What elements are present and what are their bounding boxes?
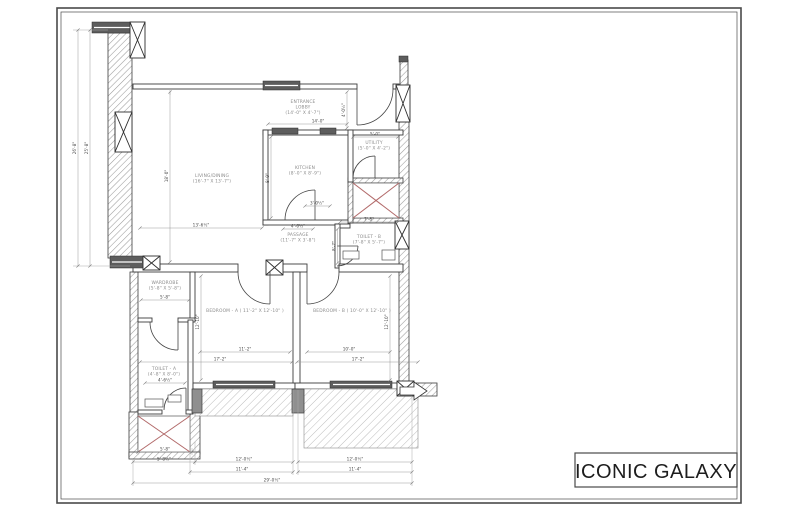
svg-text:8'-9": 8'-9" [265, 173, 270, 183]
svg-text:18'-0": 18'-0" [164, 170, 169, 183]
dimension: 12'-0½" [296, 457, 413, 464]
dimension: 3'-0½" [303, 201, 331, 208]
svg-text:3'-0½": 3'-0½" [310, 201, 324, 206]
svg-text:17'-2": 17'-2" [352, 357, 365, 362]
drawing-sheet: 26'-8"25'-8"18'-0"13'-6½"14'-0"4'-0½"8'-… [0, 0, 796, 512]
svg-text:11'-2": 11'-2" [239, 347, 252, 352]
svg-text:5'-8": 5'-8" [160, 447, 170, 452]
room-label-utility: UTILITY(5'-0" X 4'-2") [358, 140, 390, 152]
dimension: 17'-2" [138, 357, 293, 364]
dimension: 29'-0½" [131, 478, 413, 485]
room-label-bedroom-a: BEDROOM - A ( 11'-2" X 12'-10" ) [206, 308, 284, 314]
svg-text:10'-0": 10'-0" [343, 347, 356, 352]
svg-text:12'-0½": 12'-0½" [236, 457, 253, 462]
bedroom-a-door [238, 272, 270, 304]
dimension: 12'-10" [195, 274, 203, 381]
svg-text:12'-0½": 12'-0½" [347, 457, 364, 462]
svg-text:4'-6½": 4'-6½" [158, 378, 172, 383]
room-label-toilet-b: TOILET - B(7'-8" X 5'-7") [353, 234, 385, 246]
dimension: 18'-0" [164, 90, 172, 263]
bedroom-b-door [307, 272, 339, 304]
svg-text:8'-7": 8'-7" [332, 241, 337, 251]
svg-text:11'-4": 11'-4" [236, 467, 249, 472]
dimension: 11'-4" [296, 467, 413, 474]
dimension: 14'-0" [266, 119, 348, 126]
svg-text:5'-0": 5'-0" [370, 132, 380, 137]
room-labels: ENTRANCELOBBY(14'-0" X 4'-7")LIVING/DINI… [148, 99, 391, 378]
floor-plan-svg: 26'-8"25'-8"18'-0"13'-6½"14'-0"4'-0½"8'-… [0, 0, 796, 512]
interior-walls [133, 84, 403, 414]
dimension: 26'-8" [72, 28, 80, 267]
svg-text:7'-8": 7'-8" [364, 217, 374, 222]
room-label-passage: PASSAGE(11'-7" X 3'-8") [280, 232, 315, 244]
room-label-kitchen: KITCHEN(8'-0" X 8'-9") [289, 165, 321, 177]
svg-text:12'-10": 12'-10" [195, 314, 200, 329]
toilet-a-upper-door [150, 322, 178, 350]
dimension: 11'-4" [188, 467, 294, 474]
dimension: 5'-8" [139, 295, 190, 302]
room-label-bedroom-b: BEDROOM - B ( 10'-0" X 12'-10" ) [313, 308, 391, 314]
svg-text:11'-4": 11'-4" [349, 467, 362, 472]
dimension: 25'-8" [84, 28, 92, 267]
svg-text:12'-10": 12'-10" [384, 314, 389, 329]
dimension: 11'-2" [198, 347, 291, 354]
dimension: 10'-0" [305, 347, 391, 354]
balcony-hatch [195, 389, 418, 448]
dimension: 13'-6½" [138, 223, 263, 230]
svg-text:4'-6½": 4'-6½" [291, 224, 305, 229]
dimension: 12'-10" [384, 274, 392, 381]
svg-text:4'-0½": 4'-0½" [341, 103, 346, 117]
main-entrance-door [357, 89, 393, 125]
svg-text:13'-6½": 13'-6½" [193, 223, 210, 228]
dimension: 4'-6½" [143, 378, 186, 385]
title-block: ICONIC GALAXY [575, 453, 737, 487]
svg-text:5'-8½": 5'-8½" [157, 457, 171, 462]
utility-door [353, 156, 375, 178]
dimension: 12'-0½" [193, 457, 294, 464]
room-label-wardrobe: WARDROBE(5'-8" X 5'-8") [149, 280, 181, 292]
room-label-living-dining: LIVING/DINING(16'-7" X 13'-7") [193, 173, 231, 185]
project-name: ICONIC GALAXY [575, 461, 737, 483]
svg-text:29'-0½": 29'-0½" [264, 478, 281, 483]
svg-text:26'-8": 26'-8" [72, 142, 77, 155]
room-label-entrance-lobby: ENTRANCELOBBY(14'-0" X 4'-7") [285, 99, 320, 116]
room-label-toilet-a: TOILET - A(4'-8" X 8'-0") [148, 366, 180, 378]
svg-text:17'-2": 17'-2" [214, 357, 227, 362]
svg-text:5'-8": 5'-8" [160, 295, 170, 300]
svg-text:14'-0": 14'-0" [312, 119, 325, 124]
svg-text:25'-8": 25'-8" [84, 142, 89, 155]
